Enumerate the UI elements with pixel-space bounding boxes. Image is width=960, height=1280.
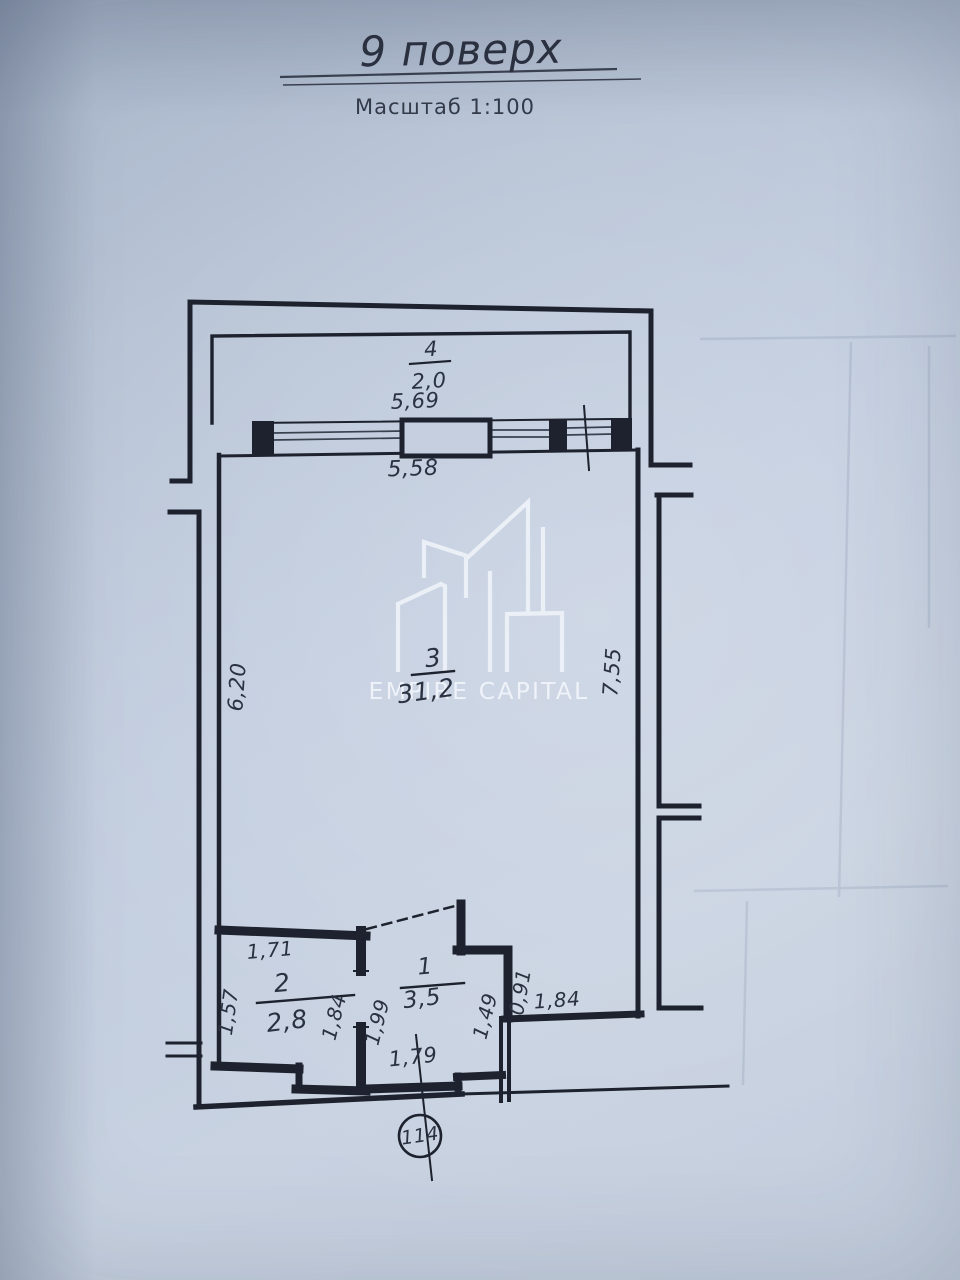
dim-living-width: 5,58 — [387, 456, 439, 483]
room-3-number: 3 — [423, 643, 442, 674]
floorplan-photo: 9 поверх Масштаб 1:100 EMPIRE CAPITAL 4 … — [0, 0, 960, 1280]
room-4-number: 4 — [423, 337, 438, 362]
logo-back-left-tower — [424, 542, 467, 578]
dim-right-side: 7,55 — [598, 647, 625, 697]
left-wall-break-ticks — [167, 1043, 201, 1056]
dim-alcove-width: 1,84 — [533, 986, 581, 1013]
bathroom-bottom-wall-left — [215, 1066, 299, 1069]
balcony-label-fraction-line — [410, 361, 450, 364]
hall-right-wall — [501, 1018, 509, 1101]
right-outer-wall — [657, 495, 701, 1008]
hall-bottom-wall — [366, 1086, 458, 1089]
hall-bottom-wall-right — [457, 1075, 502, 1077]
room-1-area: 3,5 — [402, 984, 443, 1014]
scale-label: Масштаб 1:100 — [355, 95, 535, 119]
dim-left-side: 6,20 — [223, 662, 250, 712]
ghost-lines — [694, 336, 956, 1085]
logo-peak-tower — [466, 502, 528, 612]
window-break-tick — [584, 406, 589, 470]
balcony-door — [402, 420, 490, 456]
floor-plan-linework — [0, 0, 960, 1280]
left-outer-wall — [170, 512, 199, 1107]
dim-bathroom-top: 1,71 — [246, 936, 294, 964]
dim-entry-bottom: 1,79 — [387, 1043, 438, 1072]
bathroom-bottom-wall-right — [296, 1089, 366, 1091]
page-title: 9 поверх — [359, 24, 563, 77]
logo-right-building — [507, 613, 562, 672]
bathroom-top-wall — [219, 930, 366, 936]
hall-dashed-boundary — [367, 906, 455, 929]
room-2-area: 2,8 — [265, 1004, 309, 1038]
room-1-number: 1 — [416, 953, 433, 980]
room-2-number: 2 — [273, 968, 292, 998]
dim-balcony-width: 5,69 — [390, 388, 440, 414]
